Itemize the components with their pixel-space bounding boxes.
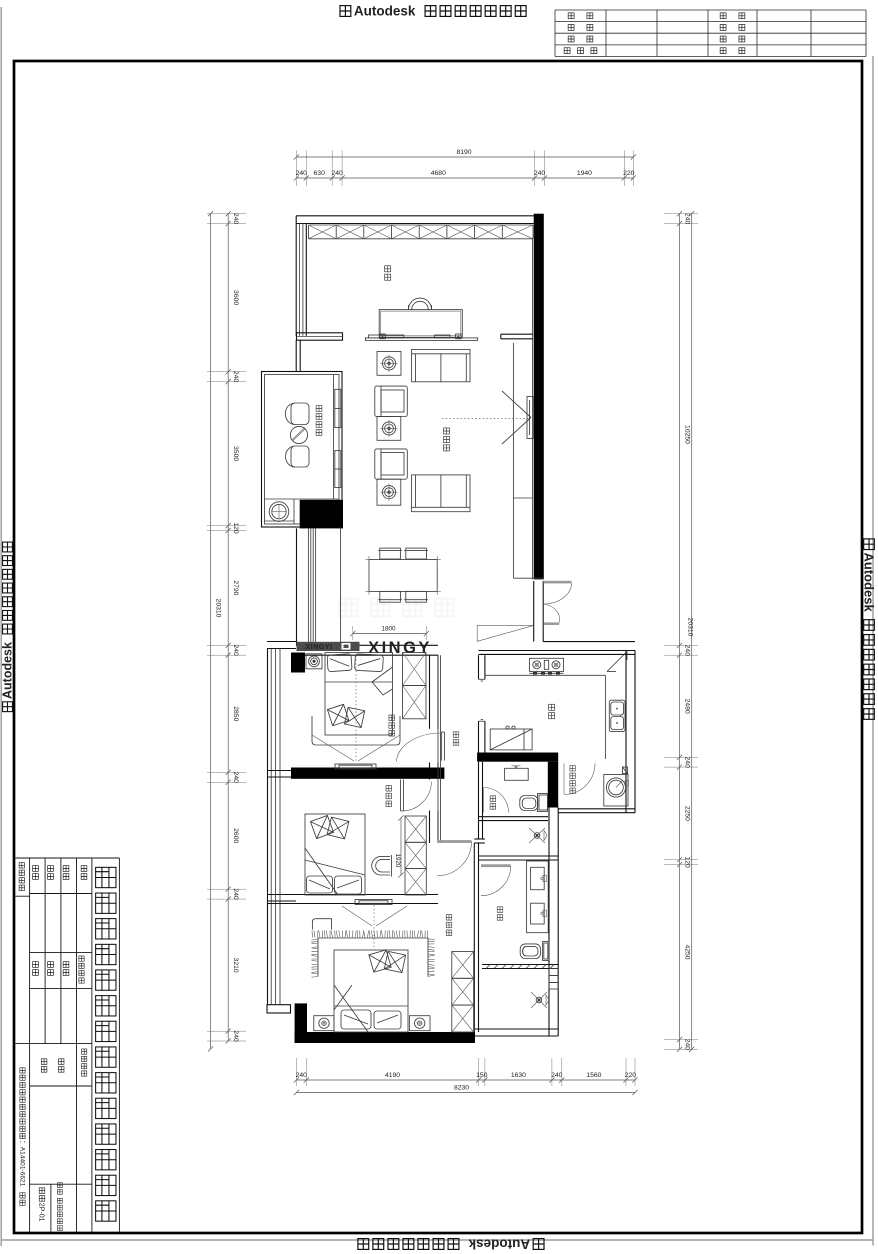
svg-text:XINGY: XINGY <box>368 639 432 657</box>
svg-text:630: 630 <box>314 170 326 177</box>
svg-text:Autodesk: Autodesk <box>1 642 15 699</box>
svg-text:240: 240 <box>232 772 239 784</box>
svg-text:1940: 1940 <box>577 170 592 177</box>
svg-text:3210: 3210 <box>232 958 239 973</box>
svg-text:240: 240 <box>232 213 239 225</box>
svg-text:4250: 4250 <box>684 944 691 959</box>
svg-text:240: 240 <box>684 757 691 769</box>
svg-text:150: 150 <box>476 1072 488 1079</box>
svg-text:240: 240 <box>232 888 239 900</box>
svg-text:20310: 20310 <box>215 599 222 618</box>
svg-text:240: 240 <box>331 170 343 177</box>
svg-text:240: 240 <box>232 645 239 657</box>
svg-text:10250: 10250 <box>684 425 691 444</box>
svg-text:3500: 3500 <box>232 446 239 461</box>
svg-text:8230: 8230 <box>454 1085 469 1092</box>
svg-text:2480: 2480 <box>684 699 691 714</box>
svg-text:240: 240 <box>296 1072 308 1079</box>
svg-text:Autodesk: Autodesk <box>468 1236 530 1251</box>
svg-text:2850: 2850 <box>232 706 239 721</box>
svg-text:240: 240 <box>684 1039 691 1051</box>
svg-text:2250: 2250 <box>684 806 691 821</box>
svg-text:4680: 4680 <box>431 170 446 177</box>
svg-text:240: 240 <box>551 1072 563 1079</box>
svg-text:20310: 20310 <box>687 618 694 637</box>
svg-text:240: 240 <box>296 170 308 177</box>
svg-text:2P-01: 2P-01 <box>38 1203 45 1222</box>
svg-text:1560: 1560 <box>586 1072 601 1079</box>
svg-text:220: 220 <box>625 1072 637 1079</box>
svg-text:2790: 2790 <box>232 580 239 595</box>
svg-text:1920: 1920 <box>394 854 401 868</box>
svg-text:220: 220 <box>623 170 635 177</box>
svg-text:120: 120 <box>684 856 691 868</box>
svg-text:XINGYI: XINGYI <box>305 642 332 651</box>
svg-text:1630: 1630 <box>511 1072 526 1079</box>
svg-text:240: 240 <box>534 170 546 177</box>
svg-text:Autodesk: Autodesk <box>862 553 877 613</box>
svg-text:4190: 4190 <box>385 1072 400 1079</box>
svg-text:：A14401-6621: ：A14401-6621 <box>18 1140 25 1187</box>
svg-text:Autodesk: Autodesk <box>354 4 416 19</box>
svg-text:2600: 2600 <box>232 828 239 843</box>
svg-text:240: 240 <box>232 371 239 383</box>
svg-text:120: 120 <box>232 522 239 534</box>
svg-text:8190: 8190 <box>456 149 471 156</box>
svg-text:240: 240 <box>232 1030 239 1042</box>
svg-text:240: 240 <box>684 213 691 225</box>
svg-text:3600: 3600 <box>232 290 239 305</box>
svg-text:1800: 1800 <box>381 625 396 632</box>
svg-text:240: 240 <box>684 645 691 657</box>
